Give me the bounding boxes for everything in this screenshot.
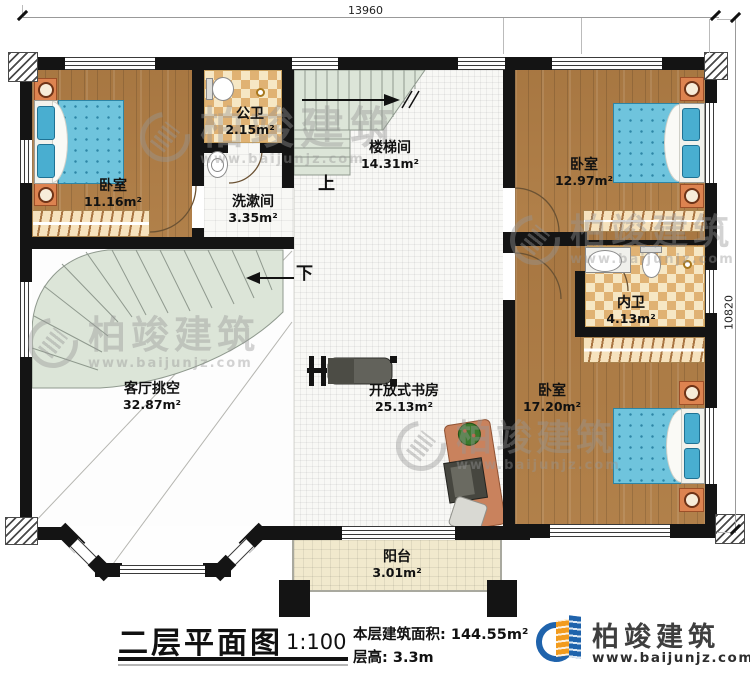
dimension-height: 10820 [723, 283, 736, 343]
extension-line [581, 18, 582, 54]
wardrobe [583, 210, 705, 232]
wall-ensuite-west [575, 271, 585, 333]
stairs-down-label: 下 [296, 259, 313, 284]
room-name: 开放式书房 [369, 384, 439, 399]
room-name: 洗漱间 [228, 195, 277, 210]
label-ensuite-bath: 内卫 4.13m² [606, 296, 655, 326]
lamp-icon [684, 81, 700, 97]
bed-pillow [37, 144, 55, 178]
room-area: 11.16m² [84, 194, 142, 209]
room-area: 25.13m² [369, 399, 439, 414]
window-bedroom-ne-east [705, 103, 717, 183]
room-area: 2.15m² [225, 122, 274, 137]
room-area: 3.35m² [228, 210, 277, 225]
nightstand [680, 77, 704, 101]
floor-area-label: 本层建筑面积: [353, 627, 446, 643]
wall-hall-east [503, 70, 515, 188]
lamp-icon [684, 385, 700, 401]
ensuite-sink [588, 250, 622, 272]
desk [438, 419, 506, 534]
extension-line [709, 19, 710, 53]
bed-pillow [682, 108, 700, 141]
dimension-line-top [23, 17, 719, 18]
wall-hall-east [503, 232, 515, 253]
room-name: 楼梯间 [361, 141, 419, 156]
bed-pillow [684, 413, 700, 444]
floor-plan-page: { "plan": { "dimensions": { "width_label… [0, 0, 750, 681]
room-area: 14.31m² [361, 156, 419, 171]
wall-left [20, 357, 32, 533]
extension-line [503, 18, 504, 54]
room-name: 公卫 [225, 107, 274, 122]
room-area: 17.20m² [523, 399, 581, 414]
window-bay-front [120, 565, 205, 577]
wall-top [505, 57, 552, 70]
drawing-scale: 1:100 [286, 630, 347, 654]
lamp-icon [684, 188, 700, 204]
wall-study-south [255, 526, 342, 540]
label-balcony: 阳台 3.01m² [372, 550, 421, 580]
nightstand [680, 184, 704, 208]
floor-height-value: 3.3m [393, 650, 434, 666]
brand-name: 柏竣建筑 [592, 615, 720, 654]
floor-height-label: 层高: [353, 650, 388, 666]
nightstand [679, 381, 704, 405]
exercise-bench [307, 356, 397, 386]
floor-area-stat: 本层建筑面积: 144.55m² [353, 623, 528, 644]
nightstand [34, 183, 57, 206]
drawing-title: 二层平面图 [118, 618, 283, 662]
brand-logo-icon [536, 612, 590, 668]
wall-bedroom-nw-east [192, 70, 204, 186]
label-bedroom-ne: 卧室 12.97m² [555, 158, 613, 188]
wall-ensuite-north [585, 240, 705, 245]
wall-ensuite-south [575, 327, 705, 337]
corner-hatch [5, 517, 38, 545]
window-bedroom-nw-west [20, 140, 32, 183]
window-bedroom-se-east [705, 408, 717, 484]
wall-bedroom-nw-east-stub [192, 228, 204, 237]
room-name: 卧室 [84, 179, 142, 194]
balcony-column [487, 580, 517, 617]
room-name: 阳台 [372, 550, 421, 565]
bed-pillow [37, 106, 55, 140]
balcony-column [279, 580, 310, 617]
label-public-bath: 公卫 2.15m² [225, 107, 274, 137]
room-name: 内卫 [606, 296, 655, 311]
dimension-width: 13960 [348, 4, 383, 17]
window-ensuite-east [705, 270, 717, 313]
door-knob [256, 88, 265, 97]
balcony-door [342, 526, 455, 540]
wall-top [338, 57, 458, 70]
bed-pillow [684, 448, 700, 479]
corner-hatch [715, 514, 745, 544]
wall-bedroom-nw-south [20, 237, 294, 249]
wall-right [705, 183, 717, 270]
window-bedroom-ne-north [552, 57, 662, 70]
room-name: 客厅挑空 [123, 382, 181, 397]
label-bedroom-se: 卧室 17.20m² [523, 384, 581, 414]
stairs-up-label: 上 [318, 169, 335, 194]
wall-left [20, 183, 32, 282]
corner-hatch [8, 52, 38, 82]
window-stairwell-north [292, 57, 338, 70]
room-area: 32.87m² [123, 397, 181, 412]
nightstand [679, 488, 704, 512]
label-bedroom-nw: 卧室 11.16m² [84, 179, 142, 209]
room-area: 3.01m² [372, 565, 421, 580]
title-underline [118, 657, 348, 661]
window-hall-north [458, 57, 505, 70]
room-area: 4.13m² [606, 311, 655, 326]
wall-hall-east [503, 300, 515, 527]
toilet-bowl [642, 252, 661, 278]
title-underline-2 [118, 664, 348, 666]
label-open-study: 开放式书房 25.13m² [369, 384, 439, 414]
wardrobe [583, 337, 705, 363]
room-name: 卧室 [555, 158, 613, 173]
wall-right [705, 313, 717, 408]
brand-website: www.baijunjz.com [592, 650, 750, 666]
lamp-icon [38, 187, 54, 203]
bed-pillow [682, 145, 700, 178]
stairs-curved [32, 250, 283, 388]
wardrobe [32, 210, 150, 237]
washroom-sink-basin [211, 158, 224, 172]
logo-building-blue [569, 615, 581, 658]
shower-head-icon [683, 260, 692, 269]
label-stairwell: 楼梯间 14.31m² [361, 141, 419, 171]
wall-stairwell-west [282, 70, 294, 188]
window-bedroom-se-south [550, 524, 670, 538]
window-void-west [20, 282, 32, 357]
dimension-line-right [735, 19, 736, 533]
room-area: 12.97m² [555, 173, 613, 188]
lamp-icon [38, 82, 54, 98]
floor-area-value: 144.55m² [451, 627, 528, 643]
floor-height-stat: 层高: 3.3m [353, 646, 434, 667]
toilet-bowl [212, 77, 234, 101]
wall-study-south [455, 526, 530, 540]
window-bedroom-nw-north [65, 57, 155, 70]
room-name: 卧室 [523, 384, 581, 399]
label-washroom: 洗漱间 3.35m² [228, 195, 277, 225]
corner-hatch [704, 52, 728, 80]
lamp-icon [684, 492, 700, 508]
wall-bedroom-ne-south [515, 232, 587, 246]
label-living-void: 客厅挑空 32.87m² [123, 382, 181, 412]
wall-top [155, 57, 292, 70]
